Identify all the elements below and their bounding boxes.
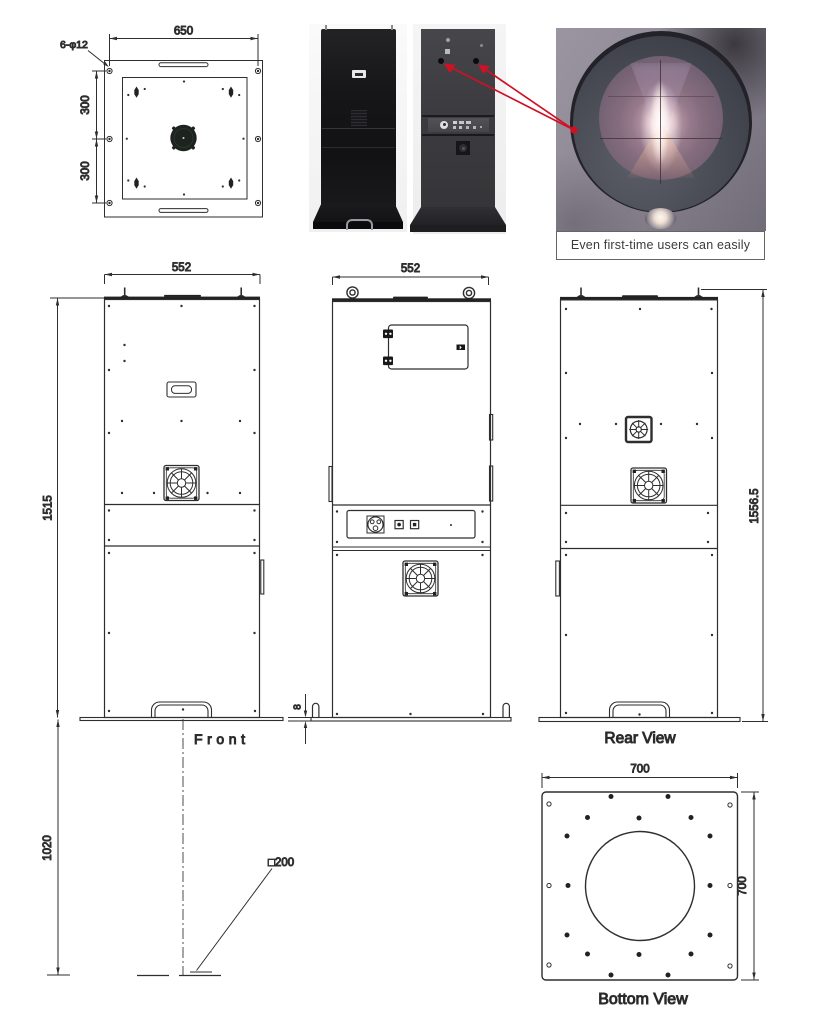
svg-text:6-φ12: 6-φ12 — [60, 39, 88, 51]
svg-text:Rear View: Rear View — [604, 730, 676, 747]
svg-text:700: 700 — [737, 876, 749, 895]
svg-text:□200: □200 — [268, 857, 294, 869]
svg-text:1556.5: 1556.5 — [749, 488, 761, 523]
svg-text:552: 552 — [172, 262, 191, 274]
svg-text:300: 300 — [80, 95, 92, 114]
svg-text:300: 300 — [80, 161, 92, 180]
svg-text:Bottom View: Bottom View — [598, 991, 688, 1008]
svg-text:1515: 1515 — [43, 495, 55, 521]
svg-text:8: 8 — [293, 704, 304, 710]
svg-text:700: 700 — [630, 764, 649, 776]
svg-text:650: 650 — [174, 26, 193, 38]
svg-text:552: 552 — [401, 263, 420, 275]
svg-text:Front: Front — [194, 731, 250, 747]
svg-text:1020: 1020 — [42, 835, 54, 861]
